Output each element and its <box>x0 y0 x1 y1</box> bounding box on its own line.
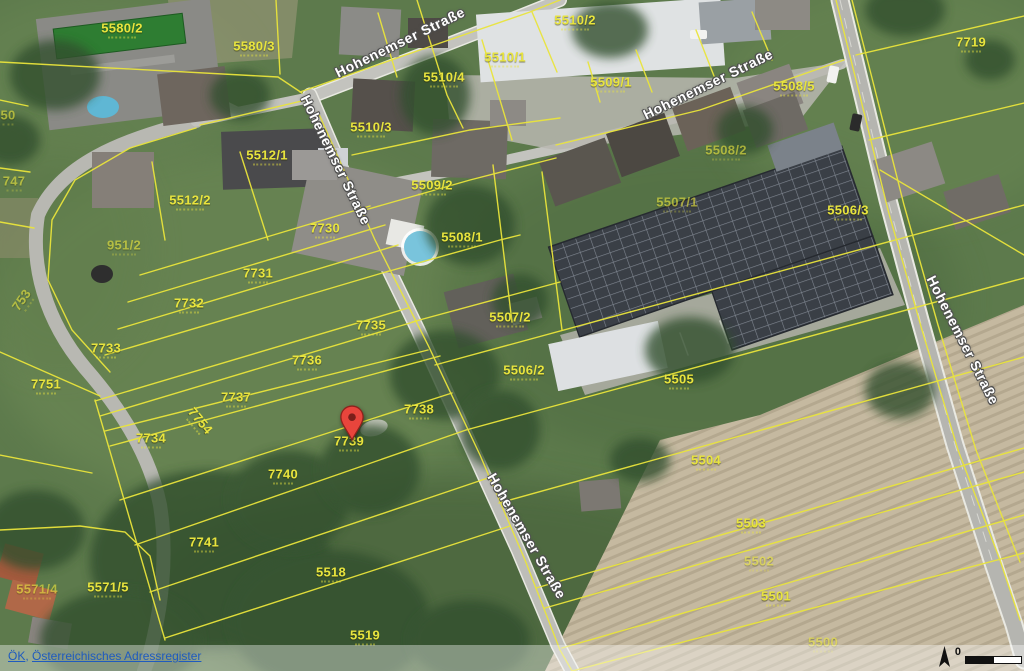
scale-zero-label: 0 <box>955 646 961 658</box>
map-scale: 0 <box>938 645 1022 669</box>
attribution-bar: ÖK, Österreichisches Adressregister 0 <box>0 645 1024 671</box>
attribution-text: ÖK, Österreichisches Adressregister <box>8 649 201 663</box>
attribution-link-adressregister[interactable]: Österreichisches Adressregister <box>32 649 201 663</box>
attribution-separator: , <box>25 649 32 663</box>
map-viewport[interactable]: 5580/25580/35510/25510/15510/45509/15508… <box>0 0 1024 671</box>
location-marker[interactable] <box>339 405 365 441</box>
satellite-map <box>0 0 1024 671</box>
north-arrow-icon <box>938 646 951 668</box>
attribution-link-ok[interactable]: ÖK <box>8 649 25 663</box>
scale-bar <box>965 656 1022 664</box>
